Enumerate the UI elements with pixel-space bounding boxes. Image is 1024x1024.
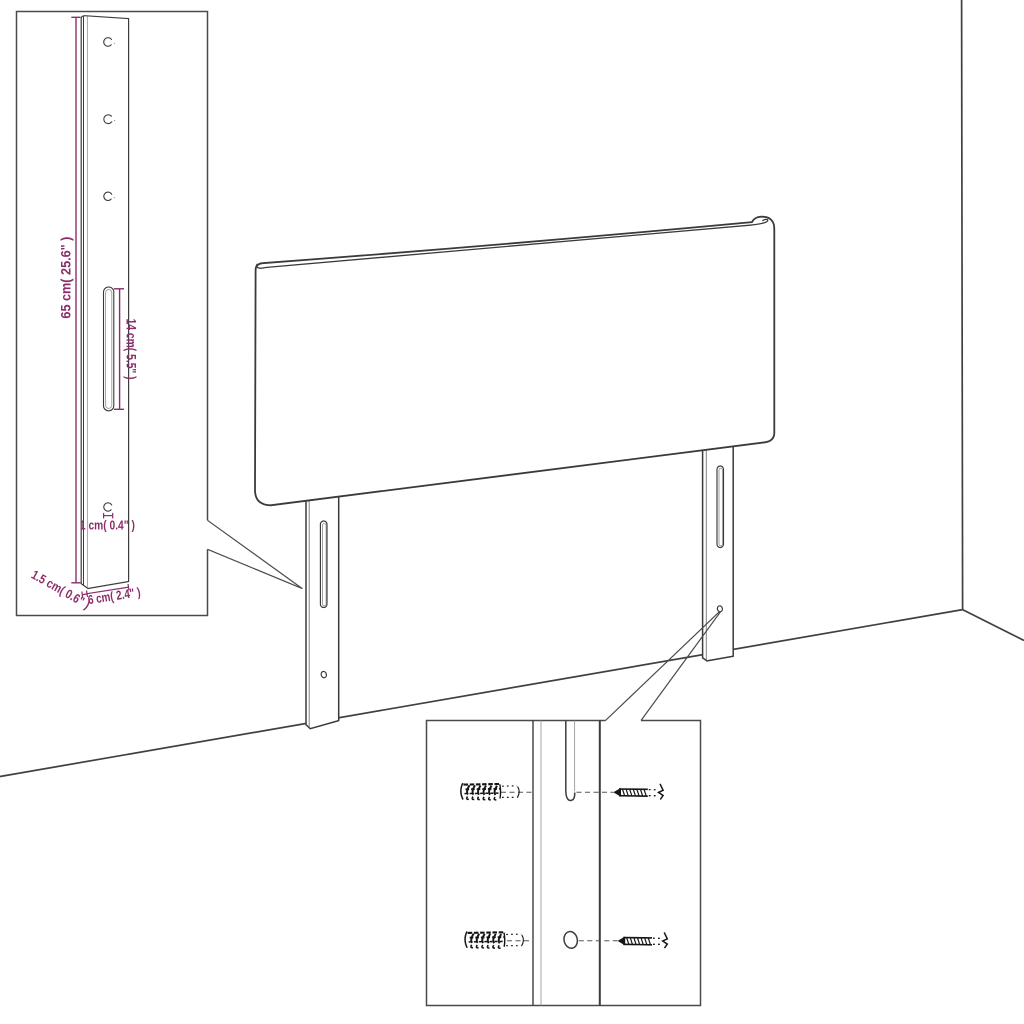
svg-text:1 cm( 0.4" ): 1 cm( 0.4" ) [80,518,135,533]
svg-text:65 cm( 25.6" ): 65 cm( 25.6" ) [58,237,73,319]
svg-text:14 cm( 5.5" ): 14 cm( 5.5" ) [124,319,139,380]
